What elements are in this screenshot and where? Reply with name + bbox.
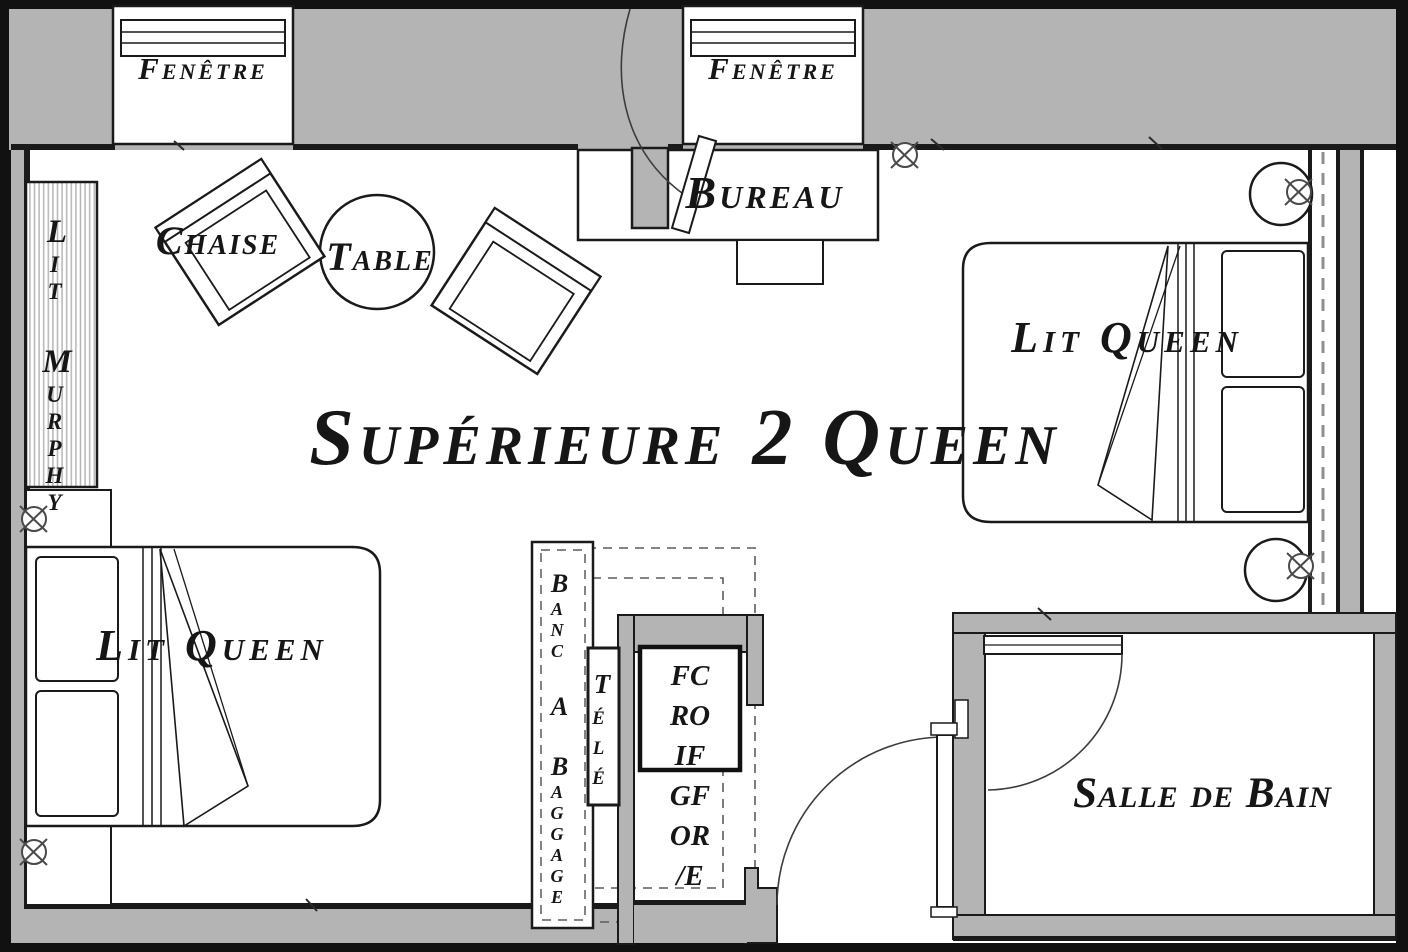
fridge-safe-line: GF	[640, 776, 740, 816]
fridge-safe-line: FC	[640, 656, 740, 696]
bed-right	[963, 243, 1308, 522]
desk	[578, 150, 878, 240]
bed-left	[26, 547, 380, 826]
fridge-safe-label: FC RO IF GF OR /E	[640, 656, 740, 896]
nightstand-bottom-left	[26, 826, 111, 905]
window-left	[113, 6, 293, 144]
outlet-icon	[20, 506, 47, 532]
murphy-bed	[26, 182, 97, 487]
pillow	[36, 691, 118, 816]
tv	[588, 648, 619, 805]
fridge-safe-line: RO	[640, 696, 740, 736]
fridge-safe-line: /E	[640, 856, 740, 896]
door-leaf	[937, 735, 953, 907]
floor-plan: Supérieure 2 Queen Fenêtre Fenêtre Burea…	[0, 0, 1408, 952]
outlet-icon	[891, 142, 918, 168]
outlet-icon	[1285, 179, 1312, 205]
pillow	[36, 557, 118, 681]
window-right	[683, 6, 863, 144]
pillow	[1222, 387, 1304, 512]
desk-chair	[737, 240, 823, 284]
outlet-icon	[20, 839, 47, 865]
pillow	[1222, 251, 1304, 377]
fridge-safe-line: OR	[640, 816, 740, 856]
outlet-icon	[1287, 553, 1314, 579]
fridge-safe-line: IF	[640, 736, 740, 776]
table	[320, 195, 434, 309]
